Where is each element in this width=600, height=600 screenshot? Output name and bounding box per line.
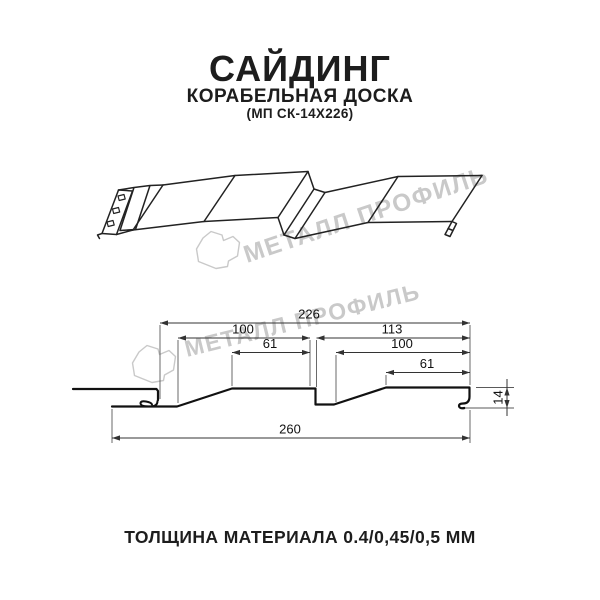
metall-profil-logo-icon — [197, 232, 240, 269]
thickness-note: ТОЛЩИНА МАТЕРИАЛА 0.4/0,45/0,5 ММ — [0, 527, 600, 548]
dim-label-100-right: 100 — [391, 336, 413, 351]
drawings-canvas: МЕТАЛЛ ПРОФИЛЬ МЕТАЛЛ ПРОФИЛЬ — [0, 0, 600, 600]
watermark-bottom: МЕТАЛЛ ПРОФИЛЬ — [133, 278, 423, 382]
watermark-top: МЕТАЛЛ ПРОФИЛЬ — [197, 162, 493, 269]
dim-label-113: 113 — [382, 322, 403, 337]
dim-label-61-left: 61 — [263, 336, 277, 351]
dim-label-226: 226 — [298, 307, 320, 322]
adjacent-panel-line — [73, 389, 158, 400]
nail-hole — [107, 221, 114, 227]
nail-hole — [118, 195, 125, 201]
product-drawing-page: САЙДИНГ КОРАБЕЛЬНАЯ ДОСКА (МП СК-14Х226)… — [0, 0, 600, 600]
dim-label-100-left: 100 — [232, 322, 254, 337]
dim-label-14: 14 — [491, 390, 506, 404]
right-hook-3d — [445, 222, 457, 237]
dimension-lines — [112, 323, 507, 438]
strip-foot — [98, 234, 103, 239]
dim-label-260: 260 — [279, 422, 301, 437]
metall-profil-logo-icon — [133, 346, 176, 383]
watermark-text: МЕТАЛЛ ПРОФИЛЬ — [240, 162, 492, 269]
dim-label-61-right: 61 — [420, 356, 434, 371]
section-profile — [73, 388, 470, 409]
extension-lines — [112, 325, 514, 443]
main-profile-line — [112, 388, 470, 409]
nail-hole — [113, 208, 120, 214]
